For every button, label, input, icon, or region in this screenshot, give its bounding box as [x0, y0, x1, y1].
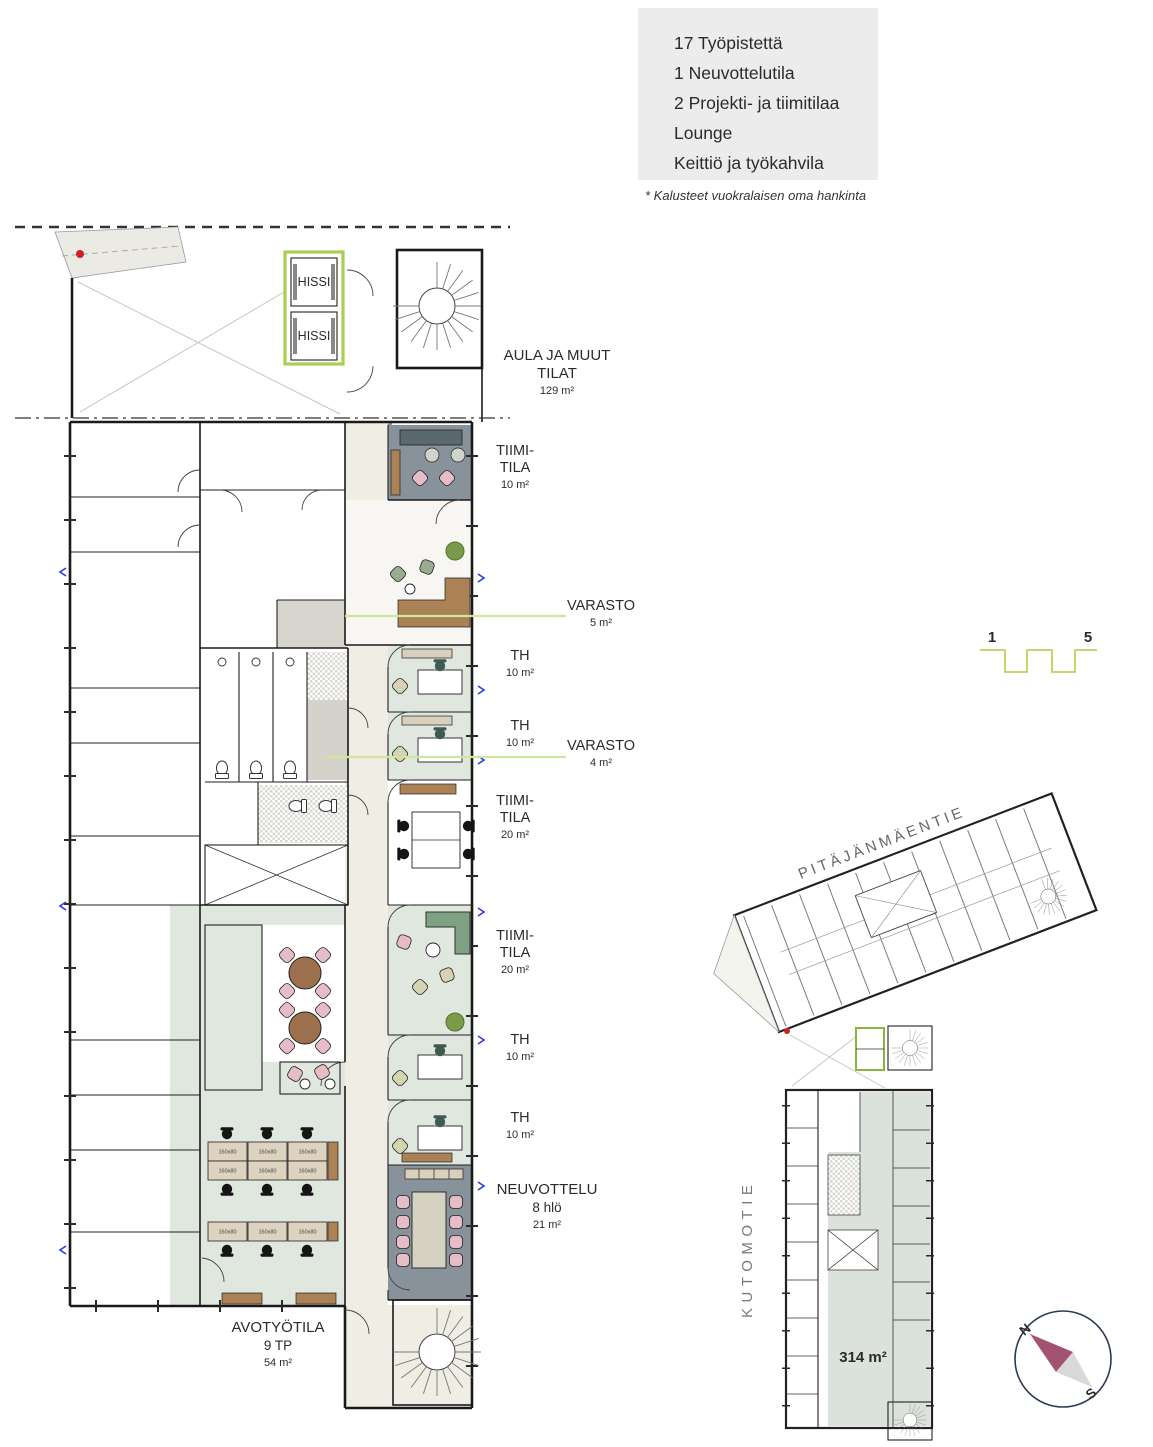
- varasto-5-label: VARASTO: [567, 598, 635, 614]
- desk-size-label: 160x80: [258, 1169, 276, 1175]
- site-building-north: PITÄJÄNMÄENTIE: [689, 772, 1097, 1046]
- svg-text:5 m²: 5 m²: [590, 617, 612, 629]
- th-4-label: TH: [510, 1110, 529, 1126]
- aula-label: AULA JA MUUT TILAT 129 m²: [504, 347, 611, 397]
- avotyotila-label: AVOTYÖTILA: [231, 1318, 324, 1336]
- spiral-stair-top: [393, 250, 482, 368]
- svg-text:10 m²: 10 m²: [506, 737, 534, 749]
- site-fire-symbol: [784, 1028, 790, 1034]
- th-3-label: TH: [510, 1032, 529, 1048]
- site-building-south: 314 m²: [786, 1090, 932, 1440]
- desk-size-label: 160x80: [298, 1150, 316, 1156]
- th-2-label: TH: [510, 718, 529, 734]
- svg-text:TILA: TILA: [500, 810, 531, 826]
- tiimitila-20a-furniture: [397, 784, 474, 868]
- desk-size-label: 160x80: [298, 1169, 316, 1175]
- svg-text:10 m²: 10 m²: [506, 667, 534, 679]
- summary-line-meeting: 1 Neuvottelutila: [674, 58, 878, 88]
- varasto-4-label: VARASTO: [567, 738, 635, 754]
- neuvottelu-label: NEUVOTTELU: [497, 1181, 598, 1198]
- svg-text:10 m²: 10 m²: [501, 479, 529, 491]
- tiimitila-20a-label: TIIMI-: [496, 793, 534, 809]
- svg-text:20 m²: 20 m²: [501, 829, 529, 841]
- program-summary-box: 17 Työpistettä 1 Neuvottelutila 2 Projek…: [638, 8, 878, 180]
- plan-drawing: HISSI HISSI AULA JA MUUT TILAT 129 m²: [0, 0, 1153, 1447]
- scale-bar: 1 5: [980, 629, 1097, 672]
- svg-text:TILAT: TILAT: [537, 365, 577, 382]
- site-plan: PITÄJÄNMÄENTIE: [689, 629, 1111, 1440]
- tiimitila-10-label: TIIMI-: [496, 443, 534, 459]
- glazed-roof-band: [55, 227, 186, 278]
- svg-text:54 m²: 54 m²: [264, 1357, 292, 1369]
- summary-line-lounge: Lounge: [674, 118, 878, 148]
- furniture-note: * Kalusteet vuokralaisen oma hankinta: [645, 188, 866, 203]
- th-1-label: TH: [510, 648, 529, 664]
- svg-text:21 m²: 21 m²: [533, 1219, 561, 1231]
- svg-text:4 m²: 4 m²: [590, 757, 612, 769]
- desk-size-label: 160x80: [258, 1230, 276, 1236]
- tiimitila-20b-label: TIIMI-: [496, 928, 534, 944]
- scale-end: 5: [1084, 629, 1092, 646]
- svg-text:10 m²: 10 m²: [506, 1129, 534, 1141]
- elevator-1-label: HISSI: [298, 275, 331, 289]
- summary-line-kitchen: Keittiö ja työkahvila: [674, 148, 878, 178]
- compass-rose: N S: [1015, 1311, 1111, 1407]
- desk-size-label: 160x80: [218, 1169, 236, 1175]
- upper-lobby: HISSI HISSI AULA JA MUUT TILAT 129 m²: [15, 227, 610, 450]
- main-building: 160x80 160x80 160x80 160x80 160x80 160x8…: [60, 422, 635, 1408]
- floor-plan-page: HISSI HISSI AULA JA MUUT TILAT 129 m²: [0, 0, 1153, 1447]
- svg-text:TILA: TILA: [500, 945, 531, 961]
- summary-line-workstations: 17 Työpistettä: [674, 28, 878, 58]
- desk-size-label: 160x80: [218, 1150, 236, 1156]
- svg-text:TILA: TILA: [500, 460, 531, 476]
- elevator-block: HISSI HISSI: [285, 252, 343, 364]
- svg-text:20 m²: 20 m²: [501, 964, 529, 976]
- street-kutomotie: KUTOMOTIE: [739, 1180, 756, 1318]
- svg-text:10 m²: 10 m²: [506, 1051, 534, 1063]
- scale-start: 1: [988, 629, 996, 646]
- elevator-2-label: HISSI: [298, 329, 331, 343]
- svg-text:AULA JA MUUT: AULA JA MUUT: [504, 347, 611, 364]
- desk-size-label: 160x80: [258, 1150, 276, 1156]
- svg-text:8 hlö: 8 hlö: [532, 1200, 561, 1215]
- desk-size-label: 160x80: [218, 1230, 236, 1236]
- compass-s: S: [1083, 1385, 1100, 1402]
- svg-text:9 TP: 9 TP: [264, 1338, 292, 1353]
- site-unit-area: 314 m²: [839, 1349, 887, 1366]
- summary-line-project: 2 Projekti- ja tiimitilaa: [674, 88, 878, 118]
- fire-symbol: [76, 250, 84, 258]
- site-stair-junction: [888, 1026, 932, 1070]
- svg-text:129 m²: 129 m²: [540, 385, 575, 397]
- desk-size-label: 160x80: [298, 1230, 316, 1236]
